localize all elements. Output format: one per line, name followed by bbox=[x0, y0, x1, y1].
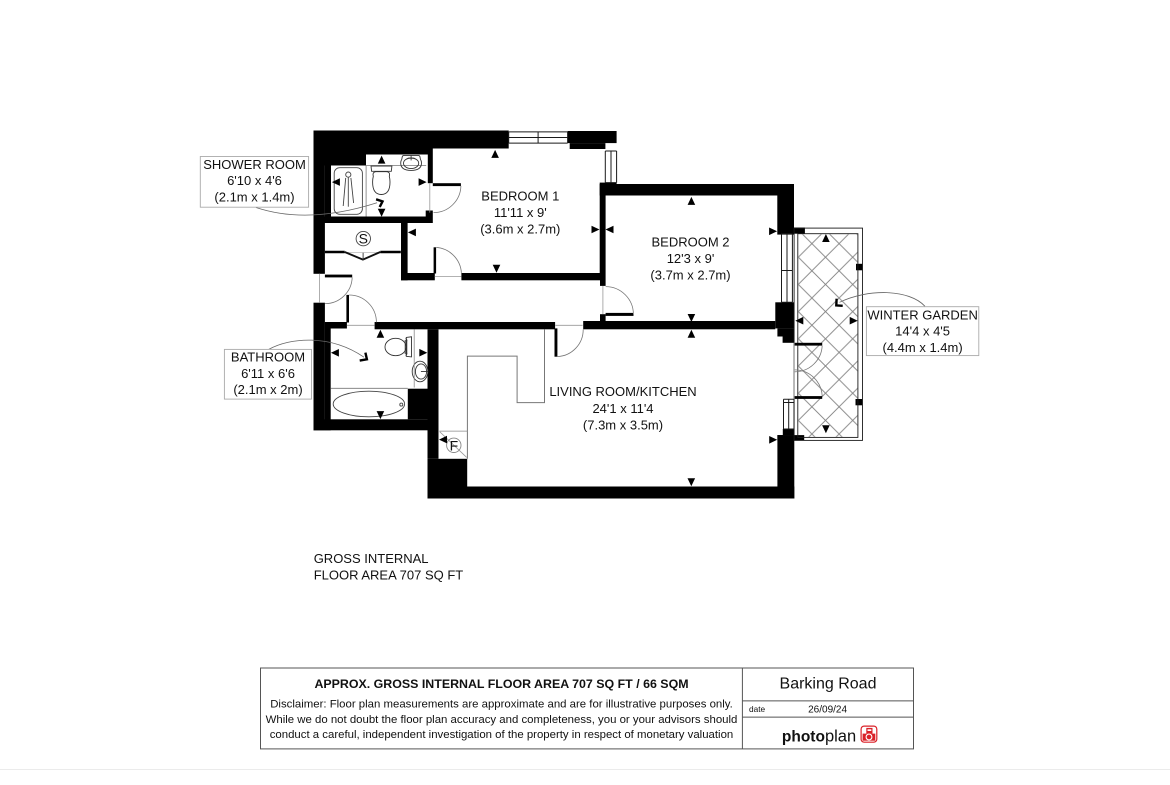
svg-text:APPROX. GROSS INTERNAL FLOOR A: APPROX. GROSS INTERNAL FLOOR AREA 707 SQ… bbox=[314, 677, 688, 691]
svg-text:photoplan: photoplan bbox=[782, 728, 856, 746]
svg-text:(3.6m x 2.7m): (3.6m x 2.7m) bbox=[480, 221, 560, 236]
svg-text:6'10 x 4'6: 6'10 x 4'6 bbox=[227, 173, 282, 188]
svg-text:(2.1m x 2m): (2.1m x 2m) bbox=[233, 382, 302, 397]
svg-text:Barking Road: Barking Road bbox=[780, 676, 877, 693]
svg-text:conduct a careful, independent: conduct a careful, independent investiga… bbox=[270, 729, 734, 741]
svg-text:(7.3m x 3.5m): (7.3m x 3.5m) bbox=[583, 417, 663, 432]
svg-text:14'4 x 4'5: 14'4 x 4'5 bbox=[895, 324, 950, 339]
svg-text:BEDROOM 1: BEDROOM 1 bbox=[481, 189, 559, 204]
svg-text:BATHROOM: BATHROOM bbox=[231, 350, 305, 365]
svg-text:WINTER GARDEN: WINTER GARDEN bbox=[867, 308, 978, 323]
svg-text:11'11 x 9': 11'11 x 9' bbox=[494, 205, 547, 220]
svg-text:FLOOR AREA 707 SQ FT: FLOOR AREA 707 SQ FT bbox=[314, 568, 464, 583]
svg-text:S: S bbox=[359, 231, 368, 247]
svg-text:(3.7m x 2.7m): (3.7m x 2.7m) bbox=[650, 267, 730, 282]
svg-text:24'1 x 11'4: 24'1 x 11'4 bbox=[592, 401, 653, 416]
svg-text:LIVING ROOM/KITCHEN: LIVING ROOM/KITCHEN bbox=[549, 384, 696, 399]
svg-text:(2.1m x 1.4m): (2.1m x 1.4m) bbox=[214, 189, 294, 204]
svg-text:GROSS INTERNAL: GROSS INTERNAL bbox=[314, 551, 429, 566]
svg-text:While we do not doubt the floo: While we do not doubt the floor plan acc… bbox=[266, 714, 738, 726]
svg-text:26/09/24: 26/09/24 bbox=[808, 704, 847, 715]
svg-text:6'11 x 6'6: 6'11 x 6'6 bbox=[241, 366, 295, 381]
svg-text:SHOWER ROOM: SHOWER ROOM bbox=[203, 157, 306, 172]
svg-text:(4.4m x 1.4m): (4.4m x 1.4m) bbox=[883, 340, 963, 355]
svg-text:date: date bbox=[749, 704, 766, 714]
svg-text:F: F bbox=[450, 437, 459, 453]
svg-text:Disclaimer: Floor plan measure: Disclaimer: Floor plan measurements are … bbox=[270, 699, 733, 711]
svg-text:BEDROOM 2: BEDROOM 2 bbox=[651, 235, 729, 250]
svg-text:12'3 x 9': 12'3 x 9' bbox=[667, 251, 715, 266]
